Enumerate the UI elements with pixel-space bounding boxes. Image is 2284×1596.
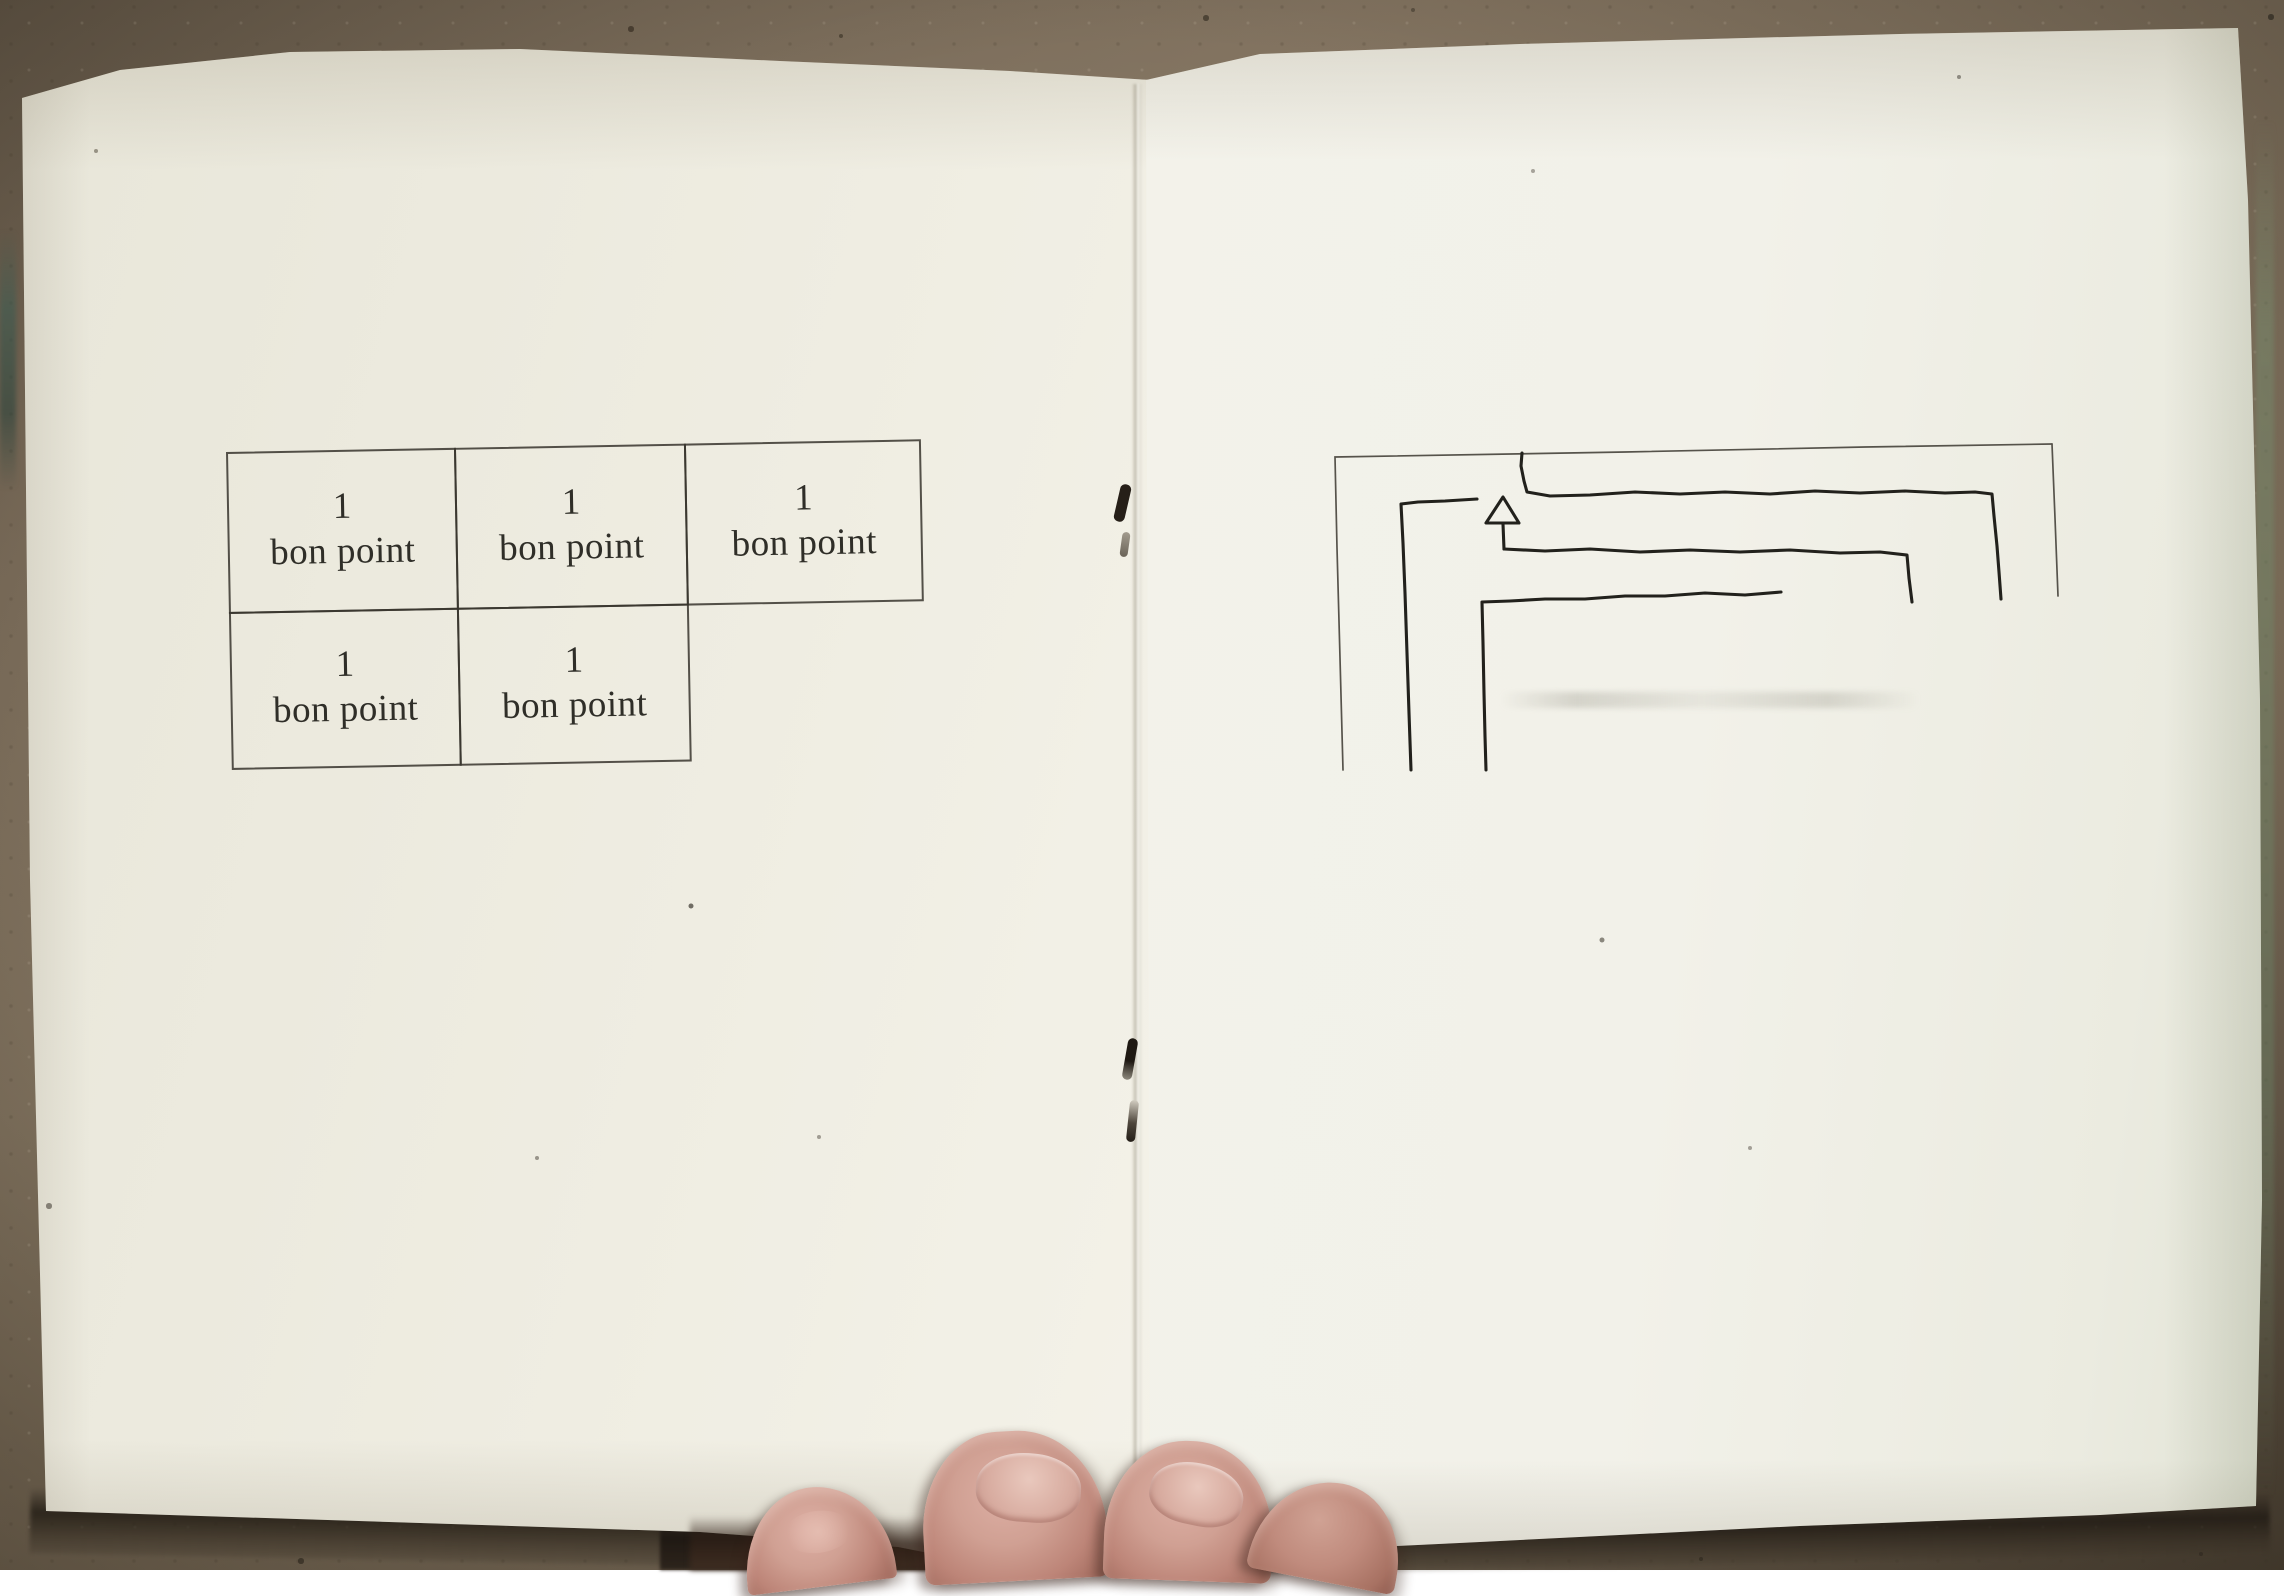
bon-point-cell: 1 bon point: [226, 448, 459, 614]
fingertip-highlight: [781, 1507, 855, 1557]
maze-drawing: [1325, 438, 2070, 778]
maze-line-outer: [1521, 453, 2001, 599]
cell-value: 1: [794, 477, 813, 519]
spine-fold: [1132, 84, 1142, 1562]
arrow-shaft: [1503, 524, 1504, 549]
bon-point-table: 1 bon point 1 bon point 1 bon point 1 bo…: [226, 439, 931, 770]
table-row: 1 bon point 1 bon point: [229, 601, 931, 770]
table-row: 1 bon point 1 bon point 1 bon point: [226, 439, 928, 614]
paper-showthrough: [1500, 692, 1920, 708]
cell-label: bon point: [270, 527, 416, 578]
maze-line-left: [1401, 499, 1477, 770]
cell-label: bon point: [502, 680, 648, 731]
photo-background: 1 bon point 1 bon point 1 bon point 1 bo…: [0, 0, 2284, 1570]
cell-label: bon point: [273, 685, 419, 736]
arrow-up-icon: [1486, 497, 1519, 523]
cell-value: 1: [561, 482, 580, 524]
printed-border-right: [2052, 444, 2058, 596]
dust-specks: [0, 0, 2, 2]
bon-point-cell: 1 bon point: [229, 608, 462, 770]
cell-label: bon point: [731, 518, 877, 569]
cover-edge-sliver-left: [0, 230, 16, 490]
cell-value: 1: [335, 644, 354, 686]
cell-label: bon point: [499, 522, 645, 573]
cell-value: 1: [564, 639, 583, 681]
cell-value: 1: [332, 486, 351, 528]
bon-point-cell: 1 bon point: [457, 604, 692, 766]
bon-point-cell: 1 bon point: [684, 439, 924, 605]
fingernail: [974, 1449, 1083, 1525]
fingernail: [1144, 1455, 1249, 1535]
bon-point-cell: 1 bon point: [454, 444, 689, 610]
maze-line-inner: [1482, 592, 1781, 770]
